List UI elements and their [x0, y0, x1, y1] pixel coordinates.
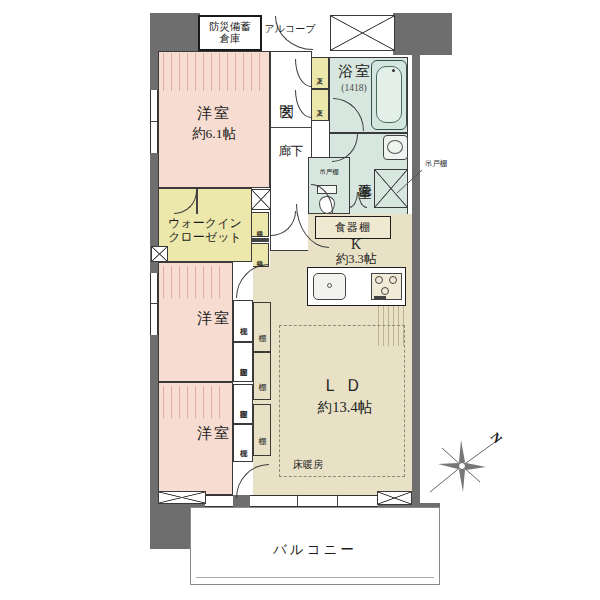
label-shelf-2: 棚 — [254, 363, 270, 389]
label-pillow-1: 枕棚 — [234, 302, 252, 340]
disaster-storage-line1: 防災備蓄 — [209, 21, 251, 33]
entrance-step-line — [270, 127, 312, 128]
label-fixed-1: 固定棚 — [234, 343, 252, 381]
window-left-2 — [150, 273, 158, 335]
label-entrance: 玄関 — [277, 66, 295, 122]
label-western-main: 洋室 — [183, 104, 245, 124]
wall-bottom-left-block — [150, 503, 193, 549]
wall-right — [412, 51, 420, 507]
stove-burner-2 — [389, 276, 397, 284]
wic-line1: ウォークイン — [168, 217, 241, 231]
label-ld-size: 約13.4帖 — [298, 398, 392, 417]
floor-plan: 防災備蓄 倉庫 アルコーブ 玄関 下足入 下足入 浴室 (1418) 廊下 洗面… — [0, 0, 600, 600]
label-hanging-cabinet-right: 吊戸棚 — [419, 159, 453, 170]
label-wic: ウォークイン クローゼット — [160, 212, 250, 250]
label-washroom: 洗面室 — [355, 135, 373, 213]
bathtub-inner — [376, 66, 402, 123]
bathtub-faucet-dot — [392, 69, 395, 72]
label-pillow-2: 枕棚 — [234, 425, 252, 461]
wall-top-right-block — [393, 13, 452, 55]
window-bottom-2-tick-2 — [337, 495, 338, 507]
window-bottom-2 — [250, 495, 378, 507]
label-balcony: バルコニー — [255, 541, 375, 559]
label-storage-1: 収納 — [252, 213, 268, 236]
curtain-hatch-room1 — [163, 53, 263, 91]
curtain-hatch-room2 — [163, 266, 227, 298]
label-shoebox-2: 下足入 — [312, 90, 328, 120]
window-left-2-tick — [150, 303, 158, 304]
label-bathroom-size: (1418) — [331, 82, 377, 94]
window-left-1-tick — [150, 121, 158, 122]
pillar-bottom-right — [377, 491, 412, 505]
label-ld: ＬＤ — [303, 375, 387, 397]
label-hanging-cabinet-toilet: 吊戸棚 — [311, 167, 347, 177]
label-shoebox-1: 下足入 — [312, 58, 328, 88]
stove-grill — [374, 296, 386, 299]
label-western-main-size: 約6.1帖 — [177, 125, 251, 142]
stove-burner-3 — [381, 287, 389, 295]
label-shelf-1: 棚 — [254, 314, 270, 340]
label-alcove: アルコーブ — [258, 22, 322, 36]
storage-divider — [251, 238, 269, 242]
kitchen-sink-drain — [327, 283, 332, 288]
label-storage-2: 収納 — [252, 244, 268, 266]
label-floor-heating: 床暖房 — [282, 458, 334, 472]
disaster-storage-line2: 倉庫 — [220, 33, 241, 45]
label-disaster-storage: 防災備蓄 倉庫 — [199, 17, 261, 49]
wic-line2: クローゼット — [168, 231, 241, 245]
balcony-inner-line — [196, 577, 434, 578]
label-fixed-2: 固定棚 — [234, 385, 252, 423]
hanging-cabinet-leader-line — [394, 167, 424, 195]
label-kitchen-size: 約3.3帖 — [316, 252, 396, 266]
window-bottom-2-tick-1 — [297, 495, 298, 507]
washroom-sink-bowl — [387, 140, 403, 154]
label-dish-cabinet: 食器棚 — [315, 218, 391, 237]
label-bathroom: 浴室 — [332, 62, 378, 80]
stove-burner-1 — [375, 276, 383, 284]
window-bottom-1 — [205, 495, 233, 507]
void-shaft — [330, 15, 395, 51]
label-corridor: 廊下 — [272, 144, 310, 159]
label-shelf-3: 棚 — [254, 417, 270, 443]
curtain-hatch-room3 — [163, 386, 227, 418]
label-kitchen: K — [316, 238, 396, 253]
pillar-bottom-left — [158, 491, 206, 504]
pipe-space-column — [251, 189, 271, 210]
